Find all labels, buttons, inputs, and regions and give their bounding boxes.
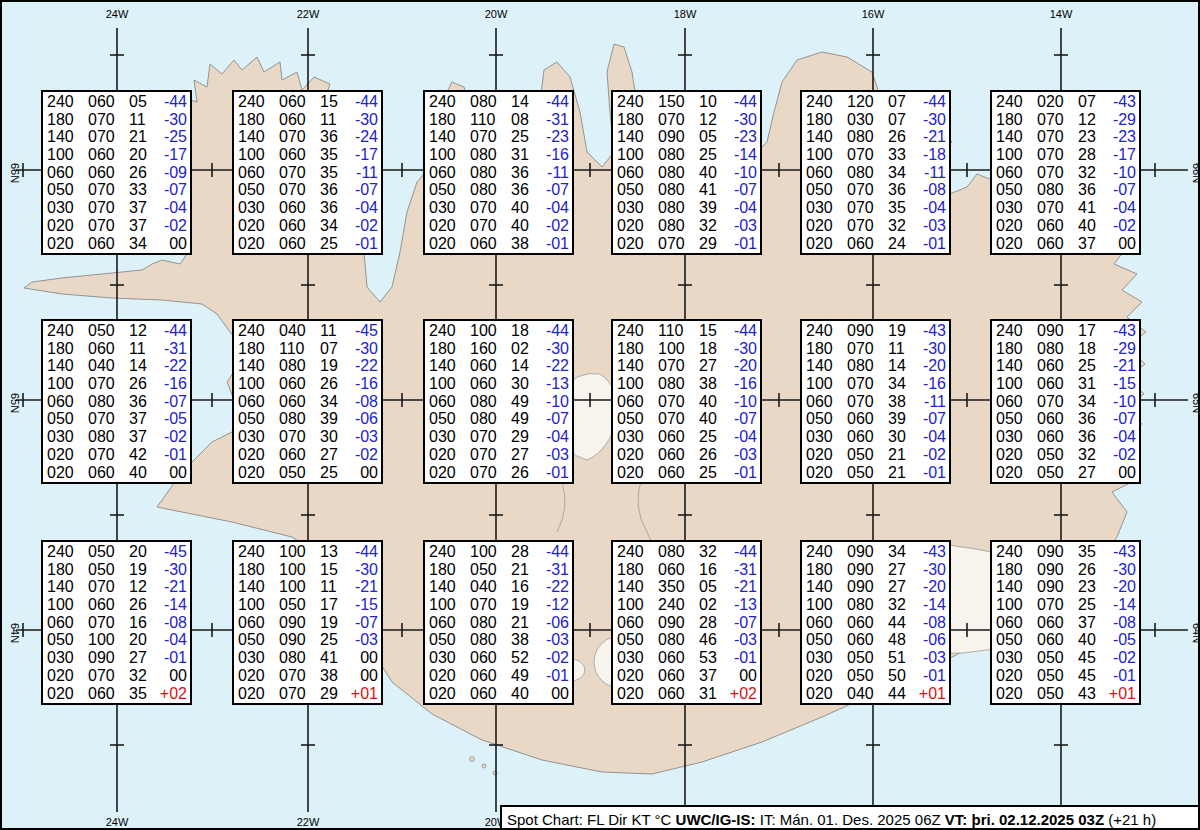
kt-cell: 16 xyxy=(511,578,541,596)
dir-cell: 070 xyxy=(88,375,129,393)
temp-cell: -06 xyxy=(350,410,378,428)
dir-cell: 090 xyxy=(847,578,888,596)
level-row: 24010013-44 xyxy=(238,543,378,561)
kt-cell: 29 xyxy=(511,428,541,446)
temp-cell: +01 xyxy=(1108,685,1136,703)
level-row: 14004016-22 xyxy=(429,578,569,596)
level-row: 05008038-03 xyxy=(429,631,569,649)
temp-cell: -16 xyxy=(729,375,757,393)
level-row: 10007034-16 xyxy=(806,375,946,393)
temp-cell: -01 xyxy=(350,235,378,253)
fl-cell: 180 xyxy=(47,340,88,358)
kt-cell: 35 xyxy=(1078,543,1108,561)
level-row: 03007029-04 xyxy=(429,428,569,446)
kt-cell: 19 xyxy=(888,322,918,340)
dir-cell: 070 xyxy=(88,446,129,464)
temp-cell: -43 xyxy=(918,322,946,340)
kt-cell: 40 xyxy=(1078,217,1108,235)
kt-cell: 20 xyxy=(129,631,159,649)
temp-cell: -06 xyxy=(541,614,569,632)
fl-cell: 060 xyxy=(238,393,279,411)
kt-cell: 37 xyxy=(129,410,159,428)
dir-cell: 060 xyxy=(470,649,511,667)
temp-cell: -07 xyxy=(729,181,757,199)
kt-cell: 40 xyxy=(699,164,729,182)
kt-cell: 44 xyxy=(888,614,918,632)
kt-cell: 38 xyxy=(699,375,729,393)
temp-cell: -04 xyxy=(1108,199,1136,217)
kt-cell: 45 xyxy=(1078,667,1108,685)
dir-cell: 350 xyxy=(658,578,699,596)
kt-cell: 05 xyxy=(699,128,729,146)
level-row: 06008049-10 xyxy=(429,393,569,411)
dir-cell: 100 xyxy=(658,340,699,358)
dir-cell: 070 xyxy=(1037,199,1078,217)
level-row: 10008038-16 xyxy=(617,375,757,393)
temp-cell: -24 xyxy=(350,128,378,146)
fl-cell: 100 xyxy=(238,596,279,614)
fl-cell: 180 xyxy=(238,561,279,579)
kt-cell: 27 xyxy=(699,357,729,375)
kt-cell: 25 xyxy=(699,464,729,482)
kt-cell: 26 xyxy=(320,375,350,393)
dir-cell: 060 xyxy=(470,375,511,393)
temp-cell: -21 xyxy=(729,578,757,596)
kt-cell: 29 xyxy=(320,685,350,703)
fl-cell: 030 xyxy=(429,199,470,217)
temp-cell: -31 xyxy=(541,561,569,579)
fl-cell: 020 xyxy=(429,464,470,482)
kt-cell: 35 xyxy=(320,164,350,182)
fl-cell: 050 xyxy=(238,181,279,199)
fl-cell: 140 xyxy=(47,357,88,375)
parallel-label-left: 66N xyxy=(9,163,21,183)
fl-cell: 020 xyxy=(429,685,470,703)
kt-cell: 28 xyxy=(1078,146,1108,164)
kt-cell: 36 xyxy=(129,393,159,411)
dir-cell: 100 xyxy=(88,631,129,649)
fl-cell: 140 xyxy=(429,357,470,375)
dir-cell: 060 xyxy=(847,428,888,446)
kt-cell: 33 xyxy=(888,146,918,164)
dir-cell: 090 xyxy=(279,614,320,632)
fl-cell: 050 xyxy=(429,181,470,199)
fl-cell: 140 xyxy=(238,128,279,146)
temp-cell: -03 xyxy=(918,217,946,235)
dir-cell: 080 xyxy=(279,410,320,428)
fl-cell: 050 xyxy=(617,181,658,199)
dir-cell: 090 xyxy=(658,128,699,146)
level-row: 18010018-30 xyxy=(617,340,757,358)
fl-cell: 180 xyxy=(617,111,658,129)
level-row: 03008039-04 xyxy=(617,199,757,217)
kt-cell: 17 xyxy=(1078,322,1108,340)
status-bar: Spot Chart: FL Dir KT °C UWC/IG-IS: IT: … xyxy=(500,805,1200,830)
fl-cell: 030 xyxy=(238,199,279,217)
dir-cell: 050 xyxy=(847,667,888,685)
kt-cell: 42 xyxy=(129,446,159,464)
fl-cell: 030 xyxy=(617,428,658,446)
dir-cell: 080 xyxy=(658,217,699,235)
kt-cell: 19 xyxy=(320,614,350,632)
dir-cell: 060 xyxy=(847,614,888,632)
dir-cell: 060 xyxy=(88,340,129,358)
dir-cell: 060 xyxy=(847,410,888,428)
temp-cell: 00 xyxy=(729,667,757,685)
fl-cell: 020 xyxy=(996,685,1037,703)
kt-cell: 36 xyxy=(320,181,350,199)
station-data-box: 24010028-4418005021-3114004016-221000701… xyxy=(423,540,574,705)
dir-cell: 050 xyxy=(1037,446,1078,464)
fl-cell: 020 xyxy=(47,217,88,235)
kt-cell: 21 xyxy=(888,446,918,464)
fl-cell: 060 xyxy=(806,164,847,182)
temp-cell: -10 xyxy=(729,393,757,411)
dir-cell: 080 xyxy=(88,393,129,411)
level-row: 06009019-07 xyxy=(238,614,378,632)
dir-cell: 070 xyxy=(847,340,888,358)
level-row: 24009019-43 xyxy=(806,322,946,340)
level-row: 24009035-43 xyxy=(996,543,1136,561)
dir-cell: 080 xyxy=(88,428,129,446)
level-row: 10006026-16 xyxy=(238,375,378,393)
temp-cell: -14 xyxy=(1108,596,1136,614)
kt-cell: 34 xyxy=(888,375,918,393)
temp-cell: -44 xyxy=(729,543,757,561)
temp-cell: -30 xyxy=(159,561,187,579)
temp-cell: -01 xyxy=(918,667,946,685)
fl-cell: 050 xyxy=(47,631,88,649)
temp-cell: -20 xyxy=(729,357,757,375)
temp-cell: -22 xyxy=(159,357,187,375)
fl-cell: 060 xyxy=(429,164,470,182)
level-row: 03006052-02 xyxy=(429,649,569,667)
temp-cell: -07 xyxy=(1108,410,1136,428)
level-row: 06007016-08 xyxy=(47,614,187,632)
kt-cell: 38 xyxy=(888,393,918,411)
fl-cell: 020 xyxy=(238,667,279,685)
kt-cell: 11 xyxy=(888,340,918,358)
fl-cell: 020 xyxy=(996,667,1037,685)
fl-cell: 060 xyxy=(617,393,658,411)
fl-cell: 060 xyxy=(996,614,1037,632)
fl-cell: 240 xyxy=(806,543,847,561)
level-row: 0200604000 xyxy=(429,685,569,703)
fl-cell: 030 xyxy=(238,428,279,446)
level-row: 10008031-16 xyxy=(429,146,569,164)
dir-cell: 070 xyxy=(88,614,129,632)
temp-cell: +02 xyxy=(729,685,757,703)
dir-cell: 050 xyxy=(470,561,511,579)
dir-cell: 060 xyxy=(279,199,320,217)
temp-cell: -16 xyxy=(541,146,569,164)
level-row: 02006025-01 xyxy=(617,464,757,482)
fl-cell: 050 xyxy=(47,410,88,428)
dir-cell: 070 xyxy=(470,217,511,235)
dir-cell: 060 xyxy=(279,111,320,129)
temp-cell: -30 xyxy=(729,111,757,129)
kt-cell: 53 xyxy=(699,649,729,667)
level-row: 24010028-44 xyxy=(429,543,569,561)
level-row: 18008018-29 xyxy=(996,340,1136,358)
fl-cell: 060 xyxy=(617,614,658,632)
fl-cell: 100 xyxy=(806,146,847,164)
temp-cell: -13 xyxy=(541,375,569,393)
level-row: 14035005-21 xyxy=(617,578,757,596)
temp-cell: -20 xyxy=(918,578,946,596)
level-row: 06008036-11 xyxy=(429,164,569,182)
fl-cell: 060 xyxy=(238,164,279,182)
temp-cell: -20 xyxy=(918,357,946,375)
kt-cell: 26 xyxy=(888,128,918,146)
level-row: 18005021-31 xyxy=(429,561,569,579)
meridian-label-top: 18W xyxy=(674,8,697,20)
dir-cell: 070 xyxy=(847,181,888,199)
level-row: 24012007-44 xyxy=(806,93,946,111)
kt-cell: 28 xyxy=(511,543,541,561)
kt-cell: 32 xyxy=(1078,446,1108,464)
kt-cell: 25 xyxy=(699,146,729,164)
dir-cell: 070 xyxy=(88,578,129,596)
temp-cell: -16 xyxy=(159,375,187,393)
fl-cell: 020 xyxy=(996,217,1037,235)
dir-cell: 070 xyxy=(1037,164,1078,182)
dir-cell: 060 xyxy=(1037,428,1078,446)
temp-cell: +02 xyxy=(159,685,187,703)
fl-cell: 020 xyxy=(47,446,88,464)
temp-cell: -04 xyxy=(918,199,946,217)
fl-cell: 100 xyxy=(617,146,658,164)
kt-cell: 32 xyxy=(699,543,729,561)
temp-cell: -02 xyxy=(350,217,378,235)
dir-cell: 060 xyxy=(88,146,129,164)
fl-cell: 100 xyxy=(238,375,279,393)
level-row: 06007040-10 xyxy=(617,393,757,411)
kt-cell: 28 xyxy=(699,614,729,632)
temp-cell: -15 xyxy=(350,596,378,614)
fl-cell: 020 xyxy=(47,685,88,703)
kt-cell: 26 xyxy=(129,164,159,182)
fl-cell: 020 xyxy=(617,464,658,482)
level-row: 14009027-20 xyxy=(806,578,946,596)
dir-cell: 080 xyxy=(470,410,511,428)
dir-cell: 080 xyxy=(658,375,699,393)
parallel-label-left: 65N xyxy=(9,393,21,413)
temp-cell: -05 xyxy=(1108,631,1136,649)
fl-cell: 030 xyxy=(806,199,847,217)
dir-cell: 090 xyxy=(1037,561,1078,579)
temp-cell: -04 xyxy=(918,428,946,446)
kt-cell: 26 xyxy=(129,375,159,393)
temp-cell: -18 xyxy=(918,146,946,164)
temp-cell: -17 xyxy=(159,146,187,164)
kt-cell: 15 xyxy=(699,322,729,340)
kt-cell: 11 xyxy=(320,111,350,129)
kt-cell: 39 xyxy=(888,410,918,428)
kt-cell: 36 xyxy=(888,181,918,199)
kt-cell: 26 xyxy=(1078,561,1108,579)
level-row: 14007023-23 xyxy=(996,128,1136,146)
temp-cell: -30 xyxy=(729,340,757,358)
dir-cell: 060 xyxy=(658,649,699,667)
level-row: 05006039-07 xyxy=(806,410,946,428)
kt-cell: 05 xyxy=(129,93,159,111)
level-row: 03007030-03 xyxy=(238,428,378,446)
temp-cell: -08 xyxy=(350,393,378,411)
kt-cell: 41 xyxy=(699,181,729,199)
fl-cell: 030 xyxy=(47,428,88,446)
kt-cell: 15 xyxy=(320,561,350,579)
temp-cell: -11 xyxy=(350,164,378,182)
kt-cell: 27 xyxy=(888,561,918,579)
level-row: 10006035-17 xyxy=(238,146,378,164)
kt-cell: 49 xyxy=(511,393,541,411)
dir-cell: 040 xyxy=(470,578,511,596)
temp-cell: -07 xyxy=(1108,181,1136,199)
fl-cell: 240 xyxy=(238,93,279,111)
temp-cell: -31 xyxy=(729,561,757,579)
kt-cell: 12 xyxy=(1078,111,1108,129)
temp-cell: -07 xyxy=(541,181,569,199)
level-row: 03007041-04 xyxy=(996,199,1136,217)
temp-cell: -07 xyxy=(918,410,946,428)
level-row: 24005020-45 xyxy=(47,543,187,561)
kt-cell: 34 xyxy=(129,235,159,253)
level-row: 18007011-30 xyxy=(806,340,946,358)
temp-cell: -30 xyxy=(918,561,946,579)
kt-cell: 29 xyxy=(699,235,729,253)
fl-cell: 240 xyxy=(996,93,1037,111)
temp-cell: +01 xyxy=(918,685,946,703)
dir-cell: 040 xyxy=(279,322,320,340)
dir-cell: 060 xyxy=(847,631,888,649)
kt-cell: 34 xyxy=(888,164,918,182)
temp-cell: -07 xyxy=(541,410,569,428)
kt-cell: 31 xyxy=(1078,375,1108,393)
level-row: 02007026-01 xyxy=(429,464,569,482)
station-data-box: 24011015-4418010018-3014007027-201000803… xyxy=(611,319,762,484)
level-row: 18016002-30 xyxy=(429,340,569,358)
temp-cell: -11 xyxy=(918,393,946,411)
dir-cell: 060 xyxy=(470,357,511,375)
level-row: 02004044+01 xyxy=(806,685,946,703)
kt-cell: 39 xyxy=(320,410,350,428)
fl-cell: 020 xyxy=(617,235,658,253)
kt-cell: 02 xyxy=(699,596,729,614)
dir-cell: 060 xyxy=(470,685,511,703)
temp-cell: -08 xyxy=(918,181,946,199)
fl-cell: 050 xyxy=(806,631,847,649)
temp-cell: -01 xyxy=(918,464,946,482)
dir-cell: 060 xyxy=(658,685,699,703)
dir-cell: 080 xyxy=(658,631,699,649)
level-row: 10007019-12 xyxy=(429,596,569,614)
kt-cell: 25 xyxy=(320,464,350,482)
level-row: 18003007-30 xyxy=(806,111,946,129)
dir-cell: 100 xyxy=(279,578,320,596)
fl-cell: 020 xyxy=(806,235,847,253)
fl-cell: 020 xyxy=(47,667,88,685)
kt-cell: 27 xyxy=(320,446,350,464)
kt-cell: 31 xyxy=(511,146,541,164)
meridian-label-top: 16W xyxy=(862,8,885,20)
fl-cell: 020 xyxy=(47,235,88,253)
fl-cell: 100 xyxy=(617,596,658,614)
dir-cell: 070 xyxy=(658,235,699,253)
dir-cell: 060 xyxy=(88,93,129,111)
dir-cell: 070 xyxy=(279,685,320,703)
temp-cell: -29 xyxy=(1108,111,1136,129)
dir-cell: 070 xyxy=(88,111,129,129)
level-row: 0200603700 xyxy=(617,667,757,685)
level-row: 24011015-44 xyxy=(617,322,757,340)
level-row: 24006005-44 xyxy=(47,93,187,111)
dir-cell: 050 xyxy=(847,464,888,482)
level-row: 06006034-08 xyxy=(238,393,378,411)
dir-cell: 070 xyxy=(847,393,888,411)
level-row: 06007035-11 xyxy=(238,164,378,182)
station-data-box: 24009019-4318007011-3014008014-201000703… xyxy=(800,319,951,484)
kt-cell: 40 xyxy=(511,685,541,703)
dir-cell: 070 xyxy=(1037,111,1078,129)
dir-cell: 090 xyxy=(847,561,888,579)
dir-cell: 060 xyxy=(470,235,511,253)
kt-cell: 35 xyxy=(888,199,918,217)
fl-cell: 140 xyxy=(806,128,847,146)
level-row: 10007025-14 xyxy=(996,596,1136,614)
dir-cell: 050 xyxy=(847,649,888,667)
fl-cell: 140 xyxy=(617,578,658,596)
temp-cell: -20 xyxy=(1108,578,1136,596)
dir-cell: 080 xyxy=(1037,181,1078,199)
temp-cell: -07 xyxy=(159,181,187,199)
kt-cell: 21 xyxy=(129,128,159,146)
level-row: 05008041-07 xyxy=(617,181,757,199)
dir-cell: 060 xyxy=(279,446,320,464)
fl-cell: 140 xyxy=(47,578,88,596)
dir-cell: 070 xyxy=(847,146,888,164)
temp-cell: -43 xyxy=(1108,543,1136,561)
kt-cell: 25 xyxy=(320,235,350,253)
dir-cell: 060 xyxy=(1037,631,1078,649)
fl-cell: 020 xyxy=(996,446,1037,464)
level-row: 03007040-04 xyxy=(429,199,569,217)
temp-cell: -30 xyxy=(541,340,569,358)
fl-cell: 180 xyxy=(806,340,847,358)
fl-cell: 240 xyxy=(617,322,658,340)
temp-cell: -01 xyxy=(729,235,757,253)
fl-cell: 240 xyxy=(47,93,88,111)
status-text-segment: IT: Mán. 01. Des. 2025 06Z xyxy=(756,811,945,828)
kt-cell: 19 xyxy=(320,357,350,375)
fl-cell: 180 xyxy=(617,561,658,579)
dir-cell: 080 xyxy=(470,614,511,632)
kt-cell: 25 xyxy=(1078,596,1108,614)
kt-cell: 14 xyxy=(511,357,541,375)
temp-cell: 00 xyxy=(159,667,187,685)
dir-cell: 240 xyxy=(658,596,699,614)
dir-cell: 080 xyxy=(658,543,699,561)
dir-cell: 080 xyxy=(470,181,511,199)
fl-cell: 180 xyxy=(429,561,470,579)
kt-cell: 37 xyxy=(129,199,159,217)
level-row: 14010011-21 xyxy=(238,578,378,596)
temp-cell: 00 xyxy=(1108,464,1136,482)
kt-cell: 50 xyxy=(888,667,918,685)
fl-cell: 180 xyxy=(47,111,88,129)
fl-cell: 140 xyxy=(806,578,847,596)
fl-cell: 030 xyxy=(617,649,658,667)
